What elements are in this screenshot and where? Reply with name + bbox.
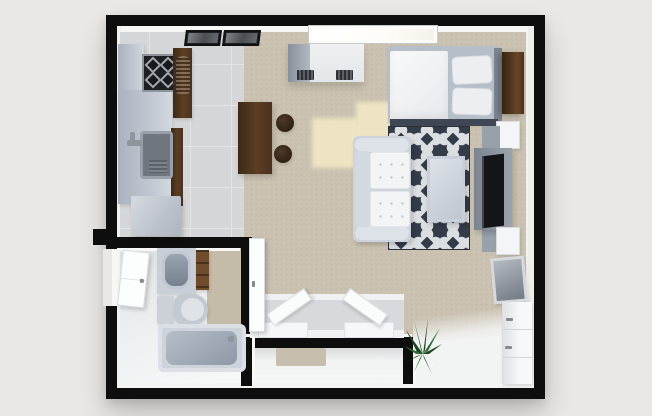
tv (482, 154, 504, 229)
doormat (276, 348, 326, 366)
sofa-armrest-top (355, 138, 409, 152)
bar-stool-2 (274, 145, 292, 163)
pillow-1 (451, 55, 492, 85)
bathtub-inner (166, 331, 237, 365)
potted-plant (404, 318, 442, 374)
art-image (225, 33, 257, 43)
duvet (390, 51, 448, 121)
wall-kitchen-bath (106, 237, 252, 248)
vent-console (288, 44, 364, 82)
wall-entry-top (241, 337, 413, 348)
vent-grille (336, 70, 353, 80)
lounge-chair-right-seat (344, 322, 394, 338)
bathroom-tan-floor (207, 248, 241, 324)
window (308, 25, 438, 44)
tub-faucet (228, 336, 234, 342)
faucet-spout (130, 132, 135, 144)
sofa-backrest (355, 151, 371, 227)
sofa-cushion-1 (370, 152, 410, 189)
door-handle (252, 281, 255, 287)
refrigerator (131, 196, 181, 236)
window-glass (312, 29, 434, 40)
headboard (494, 48, 502, 122)
drawer-handle (506, 318, 513, 321)
dining-table (238, 102, 272, 174)
lamp-box-bottom (496, 227, 520, 255)
built-in-appliance (176, 56, 190, 94)
wall-art-frame-2 (222, 30, 261, 46)
leaning-mirror (490, 256, 528, 305)
entry-hall-floor (252, 348, 403, 383)
drawer-seam (502, 357, 532, 358)
storage-shelf (196, 250, 209, 290)
floor-plan (0, 0, 652, 416)
wall-stub-exterior (93, 229, 109, 245)
sink-drain (149, 160, 167, 173)
sunlight-patch-1 (312, 118, 358, 168)
drawer-seam (502, 329, 532, 330)
bar-stool-1 (276, 114, 294, 132)
vent-grille (297, 70, 314, 80)
coffee-table-top (430, 159, 462, 219)
toilet-tank (157, 296, 174, 324)
pillow-2 (452, 87, 493, 115)
toilet-seat (181, 298, 204, 321)
chair-rail-top (250, 294, 404, 300)
art-image (187, 33, 218, 43)
bed-frame-edge (390, 119, 498, 126)
drawer-dresser (502, 302, 532, 384)
side-stand-top (482, 126, 500, 150)
lounge-chair-left-seat (258, 322, 308, 338)
wardrobe (502, 52, 524, 114)
sofa-armrest-bottom (355, 226, 409, 240)
kitchen-sink (140, 131, 173, 179)
coffee-table (427, 156, 465, 222)
entry-door-handle (140, 279, 144, 283)
wall-art-frame-1 (184, 30, 222, 46)
bathroom-door-leaf (249, 238, 265, 332)
drawer-handle (505, 346, 512, 349)
vanity-basin (162, 251, 191, 289)
counter-top-run (118, 44, 144, 94)
sofa-cushion-2 (370, 191, 410, 227)
